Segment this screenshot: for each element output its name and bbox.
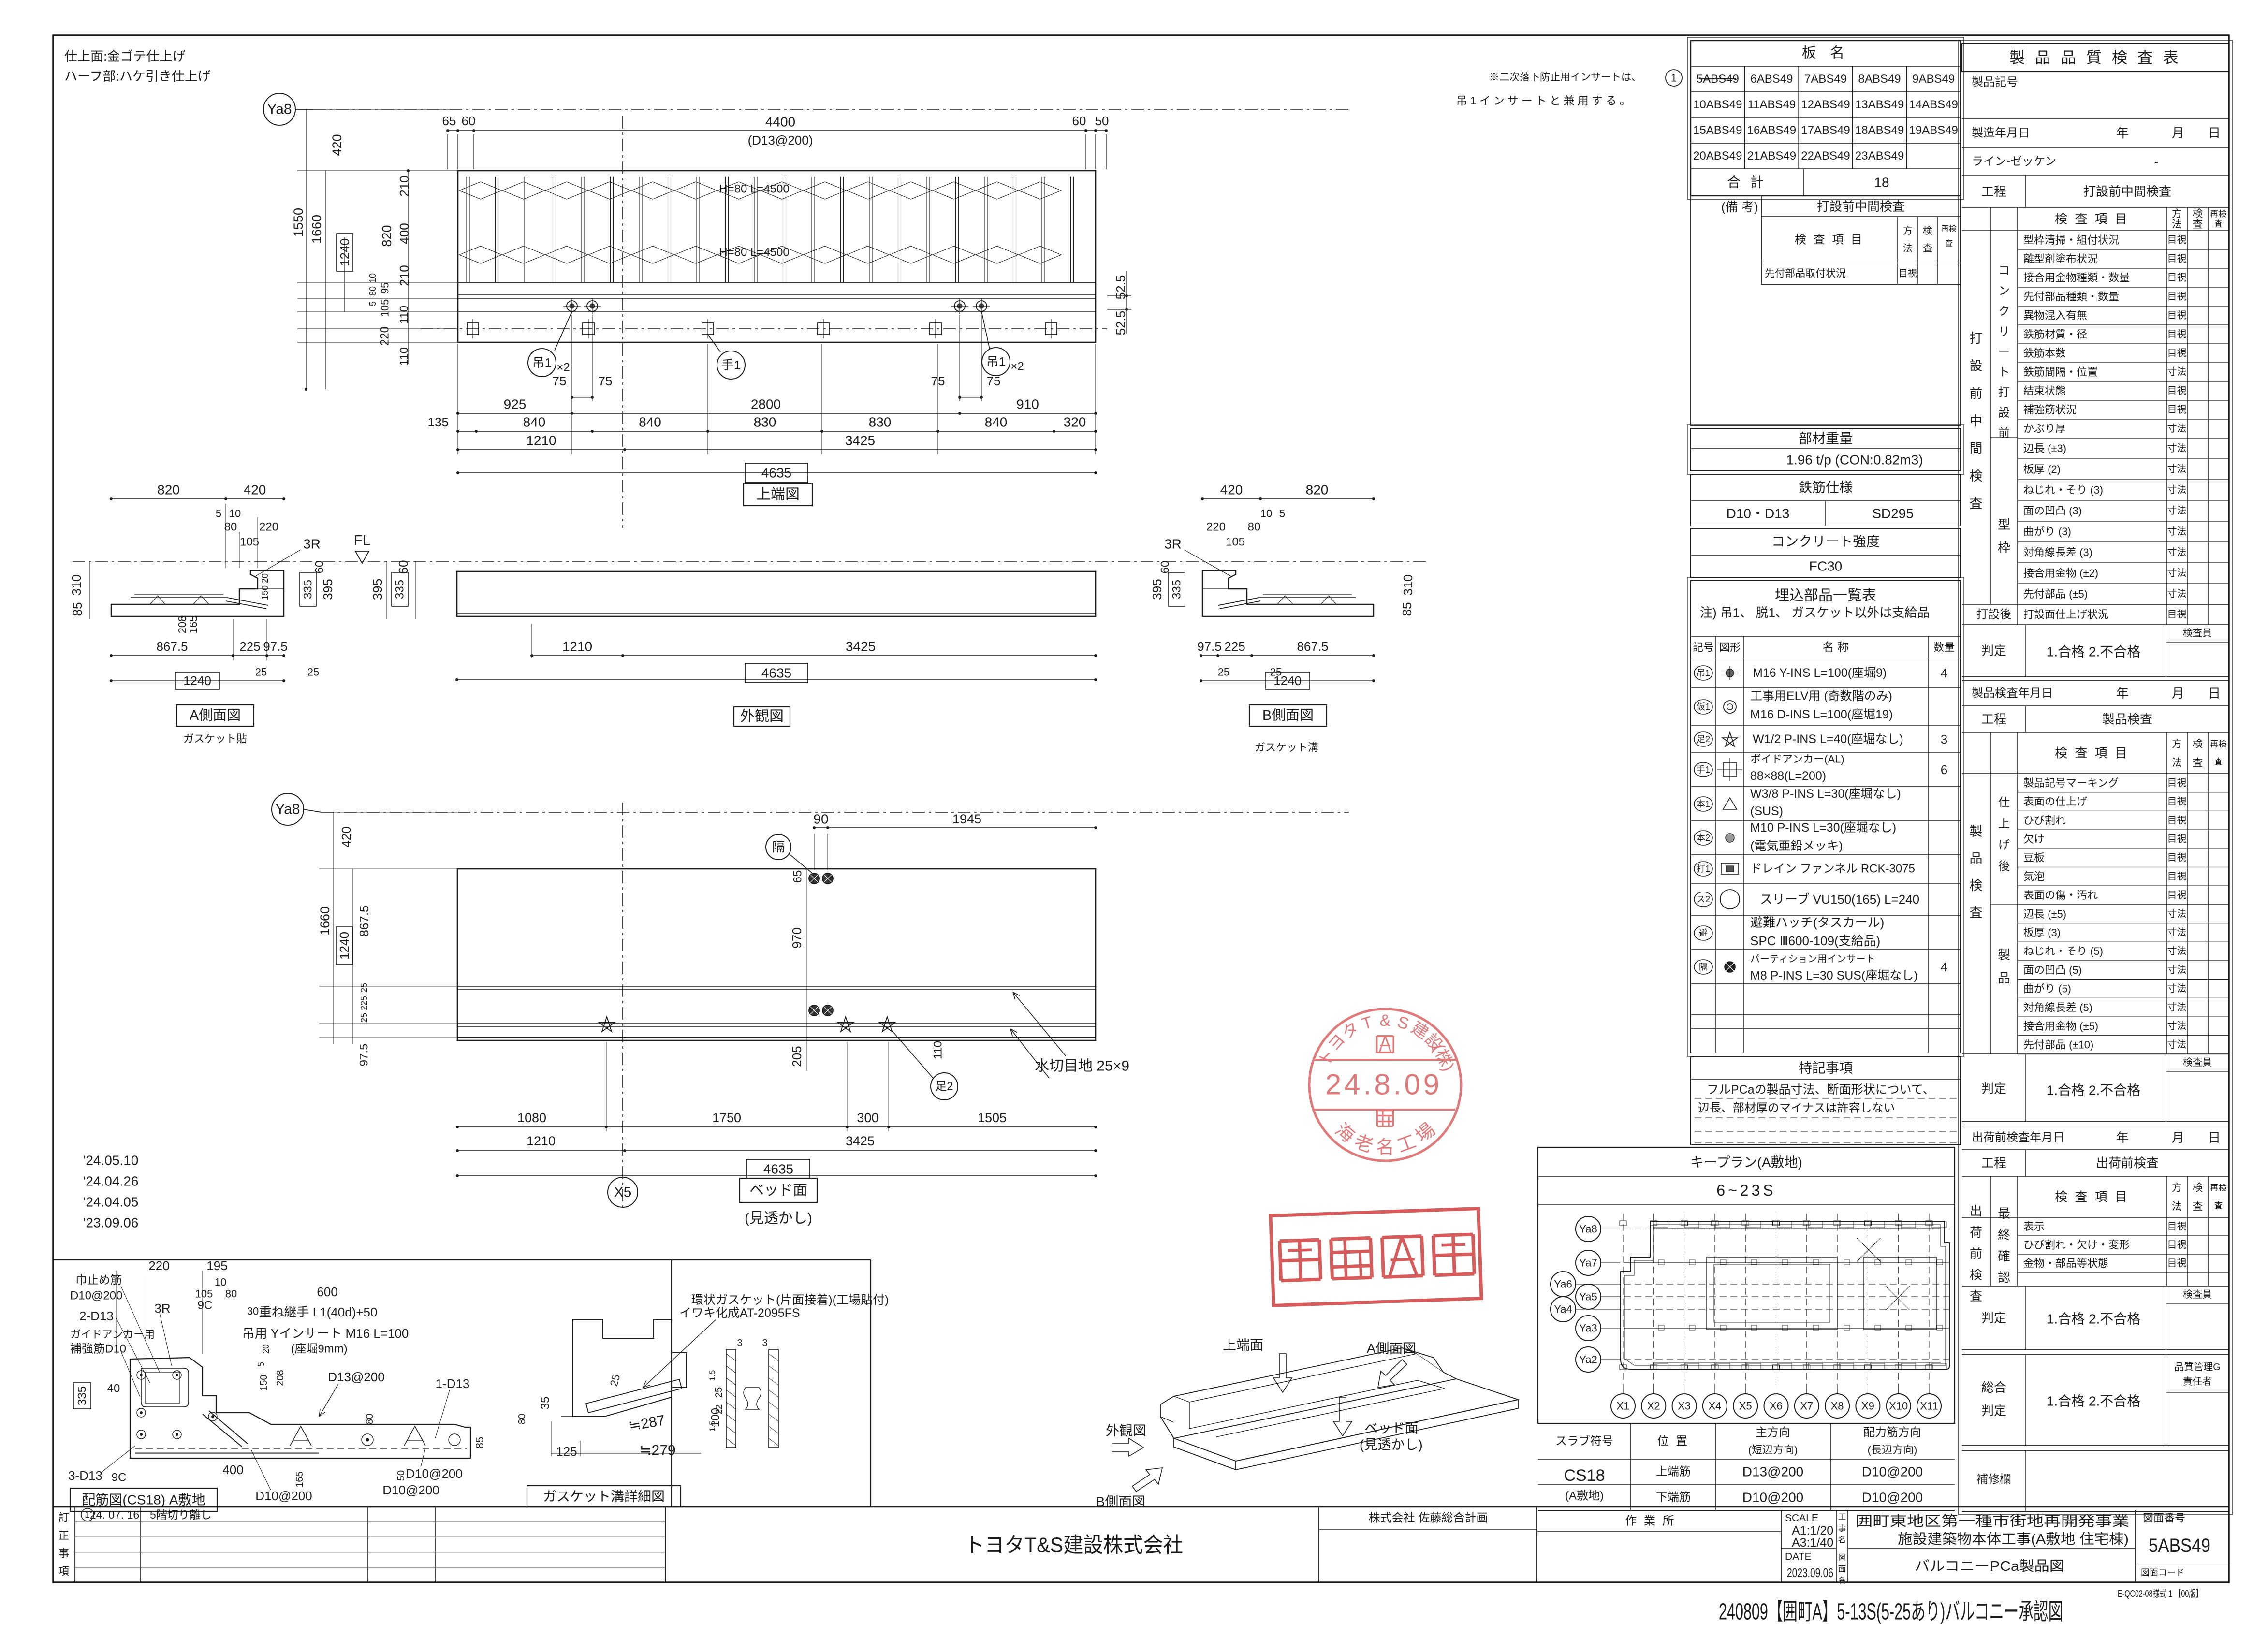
svg-text:検: 検 — [1923, 225, 1932, 236]
svg-text:気泡: 気泡 — [2023, 870, 2045, 882]
svg-text:鉄筋材質・径: 鉄筋材質・径 — [2023, 328, 2087, 340]
svg-text:目視: 目視 — [2167, 1239, 2187, 1250]
svg-text:A3:1/40: A3:1/40 — [1792, 1536, 1833, 1550]
svg-text:板 名: 板 名 — [1802, 45, 1849, 61]
svg-text:配筋図(CS18) A敷地: 配筋図(CS18) A敷地 — [82, 1492, 205, 1507]
svg-text:220: 220 — [1206, 521, 1226, 534]
svg-text:1750: 1750 — [712, 1111, 741, 1125]
svg-text:出荷前検査: 出荷前検査 — [2096, 1156, 2159, 1170]
svg-text:15ABS49: 15ABS49 — [1693, 124, 1742, 137]
svg-text:SD295: SD295 — [1872, 506, 1914, 521]
svg-text:判定: 判定 — [1981, 1082, 2006, 1096]
svg-text:後: 後 — [1998, 860, 2010, 873]
svg-text:目視: 目視 — [2167, 834, 2187, 845]
svg-text:105: 105 — [195, 1288, 213, 1300]
svg-text:対角線長差 (5): 対角線長差 (5) — [2023, 1001, 2092, 1013]
svg-text:合 計: 合 計 — [1727, 175, 1767, 190]
svg-text:製 品 品 質 検 査 表: 製 品 品 質 検 査 表 — [2009, 49, 2181, 66]
svg-text:打1: 打1 — [1697, 864, 1710, 874]
svg-text:工程: 工程 — [1981, 184, 2006, 199]
svg-text:X11: X11 — [1920, 1400, 1938, 1412]
svg-text:曲がり (3): 曲がり (3) — [2023, 526, 2071, 538]
svg-text:株式会社 佐藤総合計画: 株式会社 佐藤総合計画 — [1369, 1512, 1488, 1525]
svg-text:工事用ELV用 (奇数階のみ): 工事用ELV用 (奇数階のみ) — [1750, 689, 1892, 703]
svg-text:面の凹凸 (5): 面の凹凸 (5) — [2023, 964, 2082, 976]
svg-text:830: 830 — [754, 415, 776, 430]
svg-text:30: 30 — [247, 1305, 259, 1317]
svg-text:打設面仕上げ状況: 打設面仕上げ状況 — [2023, 609, 2108, 621]
svg-text:1.合格 2.不合格: 1.合格 2.不合格 — [2047, 1083, 2140, 1098]
svg-text:寸法: 寸法 — [2167, 588, 2187, 600]
svg-text:外観図: 外観図 — [740, 709, 784, 725]
svg-text:1210: 1210 — [526, 433, 556, 448]
svg-text:1240: 1240 — [1273, 673, 1302, 688]
svg-text:検 査 項 目: 検 査 項 目 — [1795, 234, 1864, 247]
svg-text:接合用金物種類・数量: 接合用金物種類・数量 — [2023, 272, 2130, 284]
svg-text:X3: X3 — [1678, 1400, 1691, 1412]
svg-text:6: 6 — [1941, 762, 1947, 777]
svg-text:本2: 本2 — [1697, 833, 1710, 843]
svg-text:925: 925 — [504, 397, 527, 412]
svg-text:目視: 目視 — [2167, 310, 2187, 321]
svg-text:210: 210 — [397, 265, 411, 286]
svg-text:18: 18 — [1874, 175, 1889, 190]
svg-text:420: 420 — [244, 483, 266, 497]
svg-text:10: 10 — [229, 508, 241, 520]
svg-text:表示: 表示 — [2023, 1221, 2045, 1233]
svg-text:辺長、部材厚のマイナスは許容しない: 辺長、部材厚のマイナスは許容しない — [1698, 1102, 1895, 1115]
svg-text:認: 認 — [1998, 1270, 2010, 1285]
svg-text:1660: 1660 — [309, 215, 324, 244]
svg-text:11ABS49: 11ABS49 — [1748, 98, 1796, 111]
svg-text:23ABS49: 23ABS49 — [1855, 149, 1904, 162]
svg-text:接合用金物 (±2): 接合用金物 (±2) — [2023, 567, 2098, 579]
svg-text:検: 検 — [2193, 208, 2203, 219]
svg-text:ガスケット貼: ガスケット貼 — [183, 733, 247, 745]
svg-text:検: 検 — [1970, 469, 1983, 483]
svg-text:820: 820 — [1306, 483, 1329, 497]
svg-text:1.合格 2.不合格: 1.合格 2.不合格 — [2047, 1394, 2140, 1409]
svg-text:208: 208 — [275, 1370, 286, 1386]
svg-text:年: 年 — [2116, 126, 2129, 140]
svg-text:検: 検 — [1970, 1268, 1982, 1282]
svg-text:再検: 再検 — [2210, 739, 2227, 748]
svg-text:方: 方 — [2172, 738, 2182, 749]
svg-text:工: 工 — [1838, 1513, 1846, 1521]
svg-text:'23.09.06: '23.09.06 — [83, 1215, 138, 1230]
svg-text:査: 査 — [2214, 758, 2223, 767]
svg-text:≒279: ≒279 — [639, 1443, 675, 1459]
svg-text:3R: 3R — [154, 1301, 170, 1316]
svg-text:目視: 目視 — [2167, 291, 2187, 302]
svg-text:25: 25 — [307, 666, 319, 678]
svg-text:図形: 図形 — [1719, 642, 1741, 654]
svg-text:320: 320 — [1064, 415, 1086, 430]
svg-text:目視: 目視 — [2167, 234, 2187, 246]
svg-text:避難ハッチ(タスカール): 避難ハッチ(タスカール) — [1750, 915, 1884, 930]
svg-text:22ABS49: 22ABS49 — [1801, 149, 1850, 162]
svg-text:再検: 再検 — [2210, 209, 2227, 219]
svg-text:'24.04.26: '24.04.26 — [83, 1174, 138, 1189]
svg-text:図: 図 — [1838, 1554, 1846, 1562]
svg-text:60: 60 — [1072, 114, 1086, 128]
svg-text:設: 設 — [1970, 359, 1983, 373]
svg-text:60: 60 — [1159, 561, 1172, 574]
svg-text:間: 間 — [1970, 441, 1983, 456]
svg-text:法: 法 — [1903, 243, 1913, 254]
svg-text:ス2: ス2 — [1697, 894, 1710, 904]
svg-text:830: 830 — [869, 415, 892, 430]
svg-text:X1: X1 — [1617, 1400, 1630, 1412]
svg-text:1-D13: 1-D13 — [436, 1376, 470, 1391]
svg-text:鉄筋本数: 鉄筋本数 — [2023, 347, 2066, 359]
svg-text:25: 25 — [714, 1387, 724, 1398]
svg-text:対角線長差 (3): 対角線長差 (3) — [2023, 546, 2092, 558]
svg-text:105: 105 — [240, 536, 259, 549]
svg-text:方: 方 — [2172, 208, 2182, 219]
svg-text:工程: 工程 — [1981, 712, 2006, 727]
svg-text:970: 970 — [790, 927, 804, 948]
svg-text:ベッド面: ベッド面 — [749, 1183, 807, 1199]
svg-text:施設建築物本体工事(A敷地 住宅棟): 施設建築物本体工事(A敷地 住宅棟) — [1898, 1531, 2129, 1547]
svg-text:1.5: 1.5 — [709, 1370, 717, 1381]
svg-text:×2: ×2 — [556, 361, 570, 374]
svg-text:Ya7: Ya7 — [1579, 1257, 1597, 1269]
svg-text:図面番号: 図面番号 — [2143, 1512, 2185, 1524]
svg-text:40: 40 — [107, 1382, 120, 1395]
svg-text:D13@200: D13@200 — [328, 1370, 384, 1384]
svg-text:Ya6: Ya6 — [1554, 1278, 1572, 1290]
svg-text:4635: 4635 — [761, 466, 791, 481]
svg-text:品: 品 — [1970, 851, 1983, 866]
svg-text:1550: 1550 — [291, 208, 306, 237]
svg-text:終: 終 — [1998, 1228, 2010, 1242]
svg-text:W3/8 P-INS L=30(座堀なし): W3/8 P-INS L=30(座堀なし) — [1750, 787, 1901, 801]
svg-text:Ya8: Ya8 — [275, 802, 300, 818]
svg-text:作 業 所: 作 業 所 — [1625, 1515, 1676, 1528]
svg-text:52.5: 52.5 — [1113, 311, 1128, 336]
svg-text:吊用 Yインサート M16 L=100: 吊用 Yインサート M16 L=100 — [242, 1326, 409, 1341]
svg-text:395: 395 — [321, 579, 335, 600]
svg-text:A側面図: A側面図 — [1367, 1341, 1417, 1356]
svg-text:ガイドアンカー用: ガイドアンカー用 — [70, 1329, 155, 1341]
svg-text:ー: ー — [1998, 346, 2010, 359]
svg-text:日: 日 — [2208, 686, 2221, 701]
svg-text:80: 80 — [224, 521, 237, 534]
svg-text:6ABS49: 6ABS49 — [1750, 73, 1793, 86]
svg-text:2-D13: 2-D13 — [79, 1309, 114, 1323]
svg-text:X7: X7 — [1800, 1400, 1813, 1412]
svg-text:9C: 9C — [112, 1471, 127, 1484]
svg-text:辺長 (±5): 辺長 (±5) — [2023, 908, 2066, 920]
svg-text:目視: 目視 — [2167, 609, 2187, 620]
svg-text:金物・部品等状態: 金物・部品等状態 — [2023, 1258, 2108, 1270]
svg-text:165: 165 — [294, 1471, 305, 1487]
svg-text:吊1: 吊1 — [986, 354, 1006, 369]
svg-text:1945: 1945 — [952, 812, 981, 826]
svg-text:M16 D-INS L=100(座堀19): M16 D-INS L=100(座堀19) — [1750, 708, 1893, 721]
svg-text:表面の仕上げ: 表面の仕上げ — [2023, 796, 2087, 808]
svg-text:80: 80 — [225, 1288, 237, 1300]
svg-text:日: 日 — [2208, 1130, 2221, 1145]
svg-text:335: 335 — [302, 580, 315, 599]
svg-text:仕: 仕 — [1998, 796, 2010, 809]
svg-text:寸法: 寸法 — [2167, 1021, 2187, 1032]
svg-text:名: 名 — [1838, 1577, 1846, 1585]
svg-text:60: 60 — [313, 561, 326, 574]
svg-text:A側面図: A側面図 — [190, 707, 241, 723]
svg-text:前: 前 — [1998, 427, 2010, 440]
svg-text:85: 85 — [70, 602, 85, 616]
svg-text:335: 335 — [1171, 580, 1184, 599]
svg-text:×2: ×2 — [1010, 360, 1024, 373]
svg-text:方: 方 — [1903, 225, 1913, 236]
svg-text:法: 法 — [2172, 219, 2182, 230]
svg-text:17ABS49: 17ABS49 — [1801, 124, 1850, 137]
svg-text:210: 210 — [397, 175, 411, 196]
svg-text:B側面図: B側面図 — [1262, 707, 1314, 723]
svg-text:335: 335 — [76, 1386, 89, 1405]
svg-text:8ABS49: 8ABS49 — [1858, 73, 1901, 86]
svg-text:1240: 1240 — [337, 238, 352, 266]
svg-text:型枠清掃・組付状況: 型枠清掃・組付状況 — [2023, 234, 2119, 246]
svg-text:D10@200: D10@200 — [255, 1489, 312, 1503]
svg-text:寸法: 寸法 — [2167, 927, 2187, 938]
svg-text:1210: 1210 — [527, 1134, 556, 1148]
svg-text:検 査 項 目: 検 査 項 目 — [2055, 746, 2129, 760]
svg-text:※二次落下防止用インサートは、: ※二次落下防止用インサートは、 — [1489, 72, 1641, 83]
svg-text:補強筋状況: 補強筋状況 — [2023, 404, 2077, 416]
svg-text:3R: 3R — [303, 537, 321, 552]
svg-text:6~23S: 6~23S — [1716, 1182, 1776, 1199]
svg-text:CS18: CS18 — [1564, 1466, 1605, 1485]
svg-text:図面コード: 図面コード — [2141, 1568, 2184, 1578]
svg-text:25: 25 — [1218, 666, 1229, 678]
svg-text:M8 P-INS L=30 SUS(座堀なし): M8 P-INS L=30 SUS(座堀なし) — [1750, 969, 1918, 982]
svg-text:10: 10 — [215, 1276, 226, 1288]
svg-text:再検: 再検 — [2210, 1183, 2227, 1192]
svg-text:目視: 目視 — [2167, 404, 2187, 415]
svg-text:88×88(L=200): 88×88(L=200) — [1750, 769, 1826, 783]
svg-text:査: 査 — [2193, 219, 2203, 230]
svg-text:打設後: 打設後 — [1976, 608, 2011, 621]
svg-text:ン: ン — [1998, 285, 2010, 298]
svg-text:欠け: 欠け — [2023, 833, 2045, 845]
svg-text:最: 最 — [1998, 1206, 2010, 1221]
svg-text:トヨタT&S建設株式会社: トヨタT&S建設株式会社 — [965, 1534, 1183, 1557]
svg-text:4: 4 — [1941, 960, 1947, 974]
svg-text:ガスケット溝詳細図: ガスケット溝詳細図 — [543, 1489, 665, 1504]
svg-text:打: 打 — [1998, 386, 2010, 399]
svg-text:150: 150 — [260, 585, 270, 600]
svg-text:1505: 1505 — [978, 1111, 1007, 1125]
svg-text:50: 50 — [1095, 114, 1109, 128]
svg-text:吊1インサートと兼用する。: 吊1インサートと兼用する。 — [1456, 94, 1634, 107]
svg-text:方: 方 — [2172, 1182, 2182, 1193]
svg-text:D10@200: D10@200 — [1862, 1490, 1923, 1505]
svg-text:寸法: 寸法 — [2167, 484, 2187, 496]
svg-text:D13@200: D13@200 — [1742, 1464, 1804, 1479]
svg-text:1.合格 2.不合格: 1.合格 2.不合格 — [2047, 644, 2140, 659]
svg-text:1.合格 2.不合格: 1.合格 2.不合格 — [2047, 1312, 2140, 1327]
svg-text:月: 月 — [2172, 1130, 2184, 1145]
svg-text:前: 前 — [1970, 1246, 1982, 1261]
svg-text:品: 品 — [1998, 971, 2010, 985]
svg-text:数量: 数量 — [1933, 642, 1955, 654]
svg-text:300: 300 — [857, 1111, 878, 1125]
svg-text:20: 20 — [261, 1344, 271, 1354]
svg-text:法: 法 — [2172, 757, 2182, 768]
svg-text:-: - — [2154, 154, 2159, 169]
svg-text:判定: 判定 — [1981, 643, 2006, 658]
svg-text:105: 105 — [379, 299, 391, 317]
svg-text:かぶり厚: かぶり厚 — [2023, 423, 2066, 435]
svg-text:目視: 目視 — [1899, 268, 1917, 279]
svg-text:寸法: 寸法 — [2167, 443, 2187, 454]
svg-text:仮1: 仮1 — [1697, 702, 1710, 712]
svg-text:訂: 訂 — [59, 1512, 69, 1524]
svg-text:面の凹凸 (3): 面の凹凸 (3) — [2023, 505, 2082, 517]
svg-text:Ya4: Ya4 — [1554, 1303, 1572, 1316]
svg-text:目視: 目視 — [2167, 348, 2187, 359]
svg-text:枠: 枠 — [1998, 541, 2010, 555]
svg-text:65: 65 — [791, 870, 805, 883]
svg-text:20: 20 — [260, 573, 270, 583]
svg-text:ボイドアンカー(AL): ボイドアンカー(AL) — [1750, 753, 1844, 765]
svg-text:225: 225 — [1224, 639, 1245, 654]
svg-text:50: 50 — [396, 1470, 407, 1481]
svg-text:ガスケット溝: ガスケット溝 — [1255, 742, 1318, 754]
svg-text:110: 110 — [398, 347, 411, 366]
svg-text:FC30: FC30 — [1809, 559, 1842, 574]
svg-text:バルコニーPCa製品図: バルコニーPCa製品図 — [1915, 1558, 2064, 1574]
svg-text:Ya5: Ya5 — [1579, 1291, 1597, 1303]
svg-text:査: 査 — [2193, 757, 2203, 768]
svg-text:25: 25 — [255, 666, 267, 678]
svg-text:上端図: 上端図 — [756, 487, 800, 503]
svg-text:195: 195 — [206, 1258, 227, 1273]
svg-text:220: 220 — [259, 521, 278, 534]
svg-text:目視: 目視 — [2167, 1221, 2187, 1232]
svg-text:1: 1 — [1671, 72, 1677, 84]
svg-text:75: 75 — [987, 374, 1001, 388]
svg-text:4400: 4400 — [765, 115, 795, 130]
svg-text:13ABS49: 13ABS49 — [1855, 98, 1904, 111]
svg-text:避: 避 — [1699, 928, 1708, 938]
svg-text:製: 製 — [1998, 948, 2010, 962]
svg-text:フルPCaの製品寸法、断面形状について、: フルPCaの製品寸法、断面形状について、 — [1707, 1083, 1935, 1097]
svg-text:85: 85 — [474, 1437, 486, 1448]
svg-text:3-D13: 3-D13 — [68, 1468, 102, 1483]
svg-text:840: 840 — [639, 415, 661, 430]
svg-text:部材重量: 部材重量 — [1799, 431, 1853, 446]
svg-text:600: 600 — [317, 1285, 337, 1299]
svg-text:法: 法 — [2172, 1201, 2182, 1212]
svg-text:(長辺方向): (長辺方向) — [1868, 1444, 1917, 1456]
svg-text:目視: 目視 — [2167, 815, 2187, 826]
svg-text:ライン-ゼッケン: ライン-ゼッケン — [1972, 155, 2056, 168]
svg-text:目視: 目視 — [2167, 890, 2187, 901]
svg-text:(座堀9mm): (座堀9mm) — [291, 1343, 347, 1356]
svg-text:荷: 荷 — [1970, 1225, 1982, 1240]
svg-text:240809【囲町A】5-13S(5-25あり)バルコニー承: 240809【囲町A】5-13S(5-25あり)バルコニー承認図 — [1719, 1599, 2063, 1625]
svg-text:60: 60 — [462, 114, 476, 128]
svg-text:名: 名 — [1376, 1138, 1394, 1158]
svg-text:W1/2 P-INS L=40(座堀なし): W1/2 P-INS L=40(座堀なし) — [1753, 732, 1903, 746]
svg-text:寸法: 寸法 — [2167, 964, 2187, 975]
svg-text:D10@200: D10@200 — [406, 1466, 462, 1481]
svg-text:寸法: 寸法 — [2167, 547, 2187, 558]
svg-text:ベッド面: ベッド面 — [1364, 1421, 1419, 1436]
svg-text:製品検査: 製品検査 — [2102, 712, 2152, 727]
svg-text:24. 07. 16: 24. 07. 16 — [90, 1508, 139, 1521]
svg-text:月: 月 — [2172, 686, 2184, 701]
svg-text:5: 5 — [256, 1362, 266, 1367]
svg-text:日: 日 — [2208, 126, 2221, 140]
svg-text:目視: 目視 — [2167, 1258, 2187, 1269]
svg-text:事: 事 — [59, 1548, 69, 1560]
svg-text:吊1: 吊1 — [1697, 668, 1710, 678]
svg-text:X4: X4 — [1708, 1400, 1721, 1412]
svg-text:2800: 2800 — [751, 397, 781, 412]
svg-text:打設前中間検査: 打設前中間検査 — [1817, 199, 1905, 214]
svg-text:正: 正 — [59, 1530, 69, 1542]
svg-text:製品検査年月日: 製品検査年月日 — [1972, 687, 2053, 700]
svg-text:査: 査 — [2214, 1201, 2223, 1211]
svg-text:X5: X5 — [614, 1185, 632, 1200]
svg-text:22: 22 — [714, 1404, 724, 1414]
svg-text:105: 105 — [1226, 536, 1245, 549]
svg-text:X9: X9 — [1861, 1400, 1874, 1412]
svg-text:寸法: 寸法 — [2167, 1039, 2187, 1050]
svg-text:鉄筋仕様: 鉄筋仕様 — [1799, 480, 1853, 495]
svg-text:1660: 1660 — [318, 907, 332, 936]
svg-text:35: 35 — [539, 1397, 552, 1410]
svg-text:125: 125 — [556, 1444, 577, 1459]
svg-text:注) 吊1、 脱1、 ガスケット以外は支給品: 注) 吊1、 脱1、 ガスケット以外は支給品 — [1700, 605, 1930, 620]
svg-text:65: 65 — [442, 114, 456, 128]
svg-text:埋込部品一覧表: 埋込部品一覧表 — [1775, 588, 1876, 604]
svg-text:イワキ化成AT-2095FS: イワキ化成AT-2095FS — [679, 1306, 800, 1320]
svg-text:目視: 目視 — [2167, 796, 2187, 807]
svg-text:手1: 手1 — [1697, 765, 1710, 775]
svg-text:再検: 再検 — [1941, 225, 1957, 234]
svg-text:820: 820 — [380, 225, 394, 247]
svg-text:仕上面:金ゴテ仕上げ: 仕上面:金ゴテ仕上げ — [64, 49, 186, 64]
svg-text:目視: 目視 — [2167, 385, 2187, 396]
svg-text:上端面: 上端面 — [1223, 1338, 1263, 1353]
svg-text:寸法: 寸法 — [2167, 464, 2187, 475]
svg-text:年: 年 — [2116, 686, 2129, 701]
svg-text:FL: FL — [353, 533, 370, 549]
svg-text:'24.04.05: '24.04.05 — [83, 1195, 138, 1210]
svg-text:重ね継手 L1(40d)+50: 重ね継手 L1(40d)+50 — [259, 1305, 378, 1319]
svg-text:結束状態: 結束状態 — [2023, 385, 2066, 397]
svg-text:9ABS49: 9ABS49 — [1912, 73, 1955, 86]
svg-text:335: 335 — [394, 580, 407, 599]
svg-text:M16 Y-INS L=100(座堀9): M16 Y-INS L=100(座堀9) — [1753, 666, 1887, 680]
svg-text:検 査 項 目: 検 査 項 目 — [2055, 1190, 2129, 1204]
svg-text:80: 80 — [365, 1414, 375, 1424]
svg-text:隔: 隔 — [772, 840, 785, 854]
svg-text:上: 上 — [1998, 818, 2010, 831]
svg-text:310: 310 — [69, 574, 84, 595]
svg-text:ねじれ・そり (3): ねじれ・そり (3) — [2023, 484, 2103, 496]
svg-text:3: 3 — [762, 1338, 767, 1348]
svg-text:1.5: 1.5 — [709, 1421, 717, 1432]
svg-text:パーティション用インサート: パーティション用インサート — [1750, 954, 1875, 965]
svg-text:M10 P-INS L=30(座堀なし): M10 P-INS L=30(座堀なし) — [1750, 821, 1896, 834]
